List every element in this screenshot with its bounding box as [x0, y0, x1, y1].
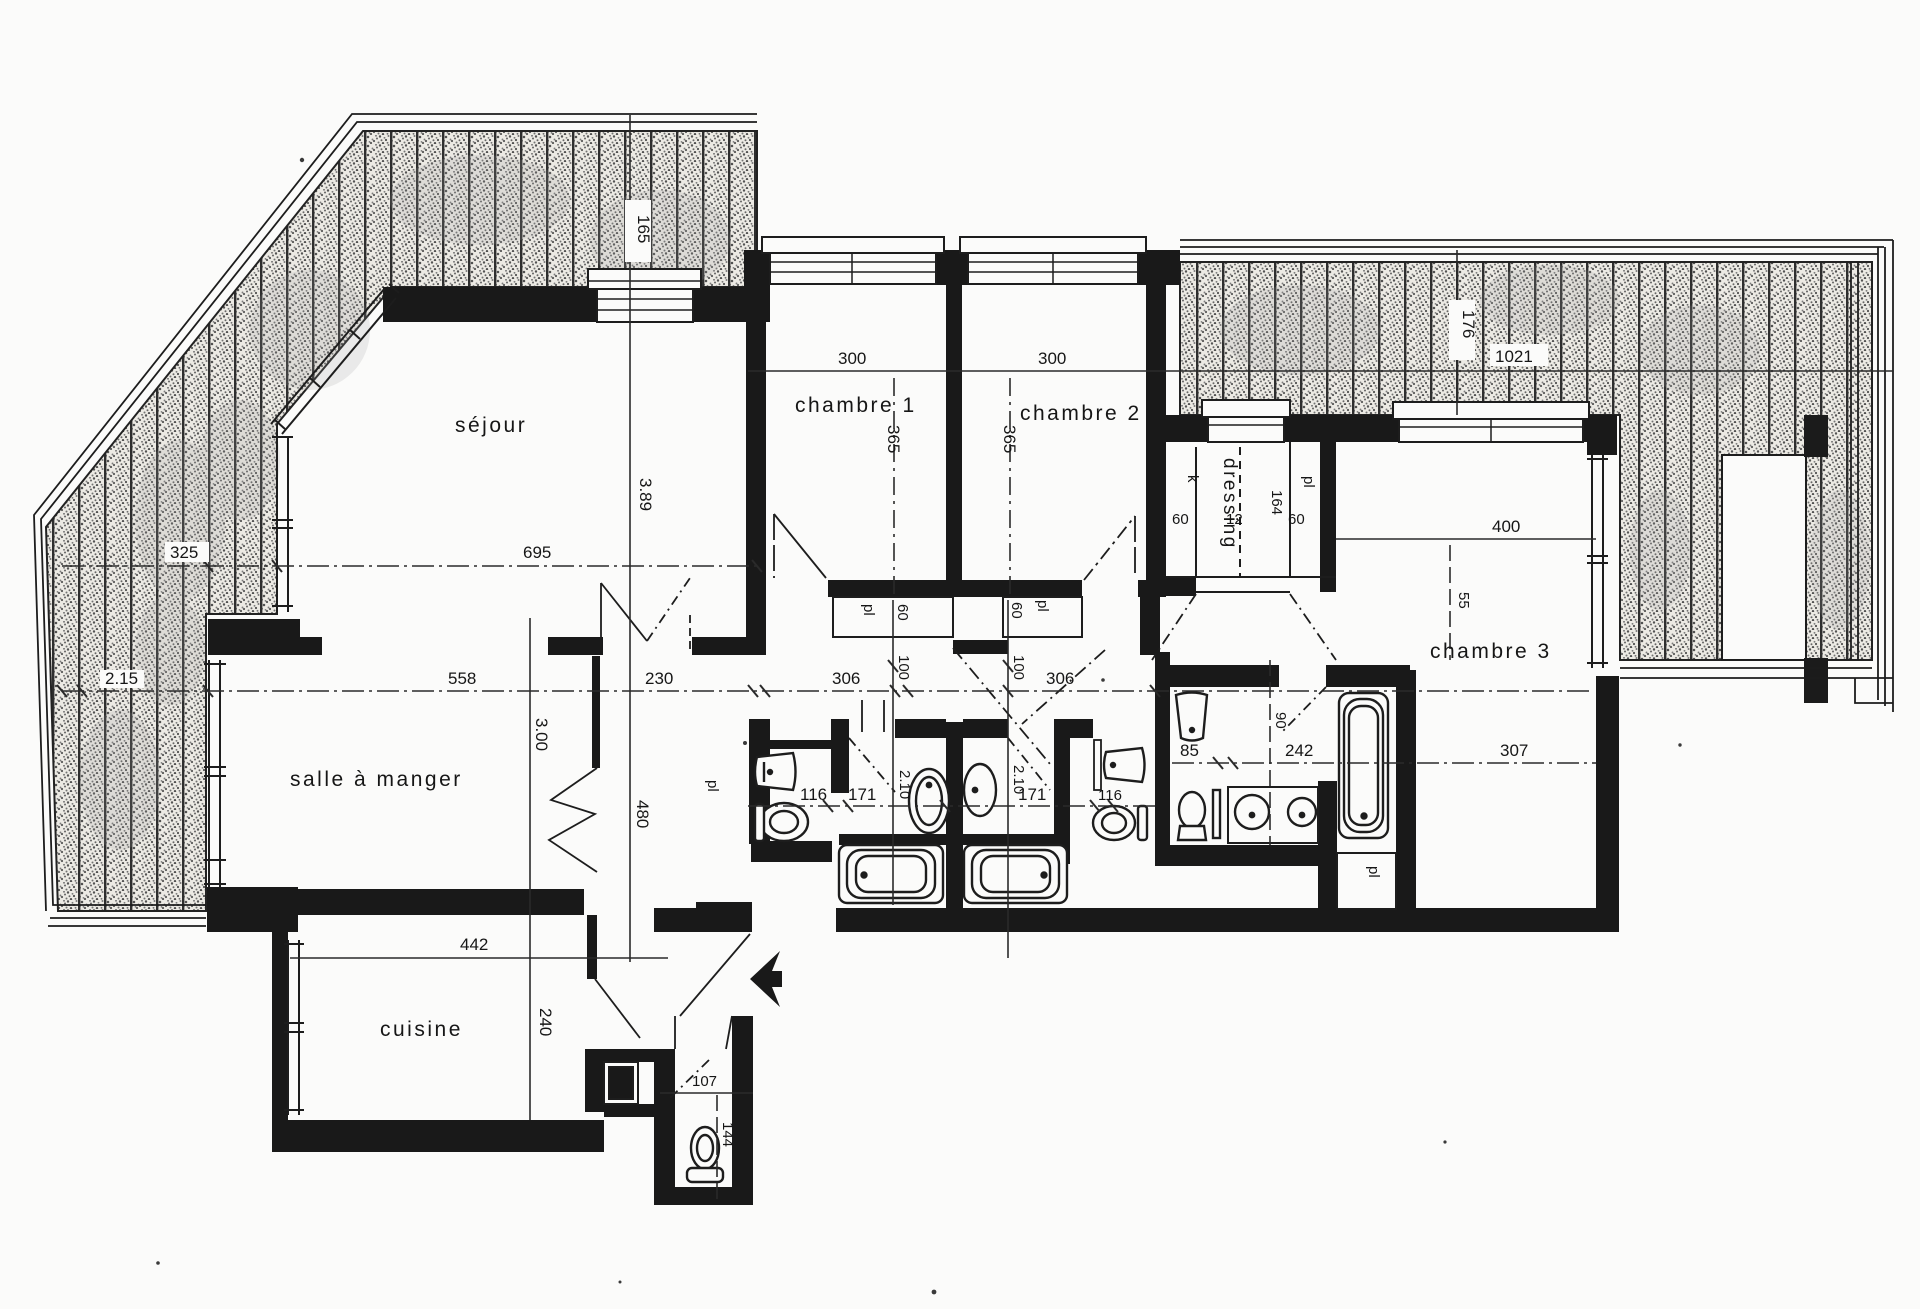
svg-text:116: 116 [800, 785, 827, 804]
svg-text:442: 442 [460, 935, 488, 954]
svg-text:chambre 3: chambre 3 [1430, 640, 1552, 663]
svg-text:306: 306 [1046, 669, 1074, 688]
svg-text:2.15: 2.15 [105, 669, 138, 688]
svg-text:300: 300 [1038, 349, 1066, 368]
svg-text:2.10: 2.10 [896, 770, 913, 799]
svg-text:100: 100 [1010, 655, 1027, 680]
svg-text:116: 116 [1098, 787, 1122, 804]
svg-text:dressing: dressing [1219, 458, 1240, 550]
svg-text:164: 164 [1268, 490, 1285, 515]
svg-text:k: k [1184, 475, 1201, 483]
svg-text:12: 12 [1226, 511, 1243, 528]
svg-text:171: 171 [848, 785, 876, 804]
svg-text:60: 60 [1288, 511, 1305, 528]
svg-text:60: 60 [894, 604, 911, 621]
svg-text:400: 400 [1492, 517, 1520, 536]
svg-text:176: 176 [1459, 310, 1478, 338]
svg-text:242: 242 [1285, 741, 1313, 760]
svg-text:pl: pl [1300, 476, 1317, 488]
svg-text:1021: 1021 [1495, 347, 1533, 366]
svg-text:cuisine: cuisine [380, 1018, 463, 1041]
svg-text:2.10: 2.10 [1010, 765, 1027, 794]
svg-text:60: 60 [1008, 602, 1025, 619]
svg-text:pl: pl [1365, 866, 1382, 878]
svg-text:365: 365 [1000, 425, 1019, 453]
svg-text:chambre 2: chambre 2 [1020, 402, 1142, 425]
svg-text:307: 307 [1500, 741, 1528, 760]
svg-text:480: 480 [633, 800, 652, 828]
svg-text:300: 300 [838, 349, 866, 368]
svg-text:100: 100 [895, 655, 912, 680]
svg-text:85: 85 [1180, 741, 1199, 760]
svg-text:3.89: 3.89 [636, 478, 655, 511]
svg-text:240: 240 [536, 1008, 555, 1036]
svg-text:pl: pl [1034, 600, 1051, 612]
svg-text:165: 165 [634, 215, 653, 243]
svg-text:90: 90 [1272, 712, 1289, 729]
svg-text:306: 306 [832, 669, 860, 688]
svg-text:230: 230 [645, 669, 673, 688]
svg-text:558: 558 [448, 669, 476, 688]
svg-text:séjour: séjour [455, 414, 527, 437]
svg-text:60: 60 [1172, 511, 1189, 528]
svg-text:325: 325 [170, 543, 198, 562]
svg-text:365: 365 [884, 425, 903, 453]
svg-text:55: 55 [1455, 592, 1472, 609]
svg-text:salle à manger: salle à manger [290, 768, 463, 791]
svg-text:144: 144 [719, 1122, 736, 1147]
svg-text:695: 695 [523, 543, 551, 562]
svg-text:107: 107 [692, 1073, 717, 1090]
svg-text:3.00: 3.00 [532, 718, 551, 751]
svg-text:chambre 1: chambre 1 [795, 394, 917, 417]
svg-text:pl: pl [860, 604, 877, 616]
svg-text:pl: pl [704, 780, 721, 792]
